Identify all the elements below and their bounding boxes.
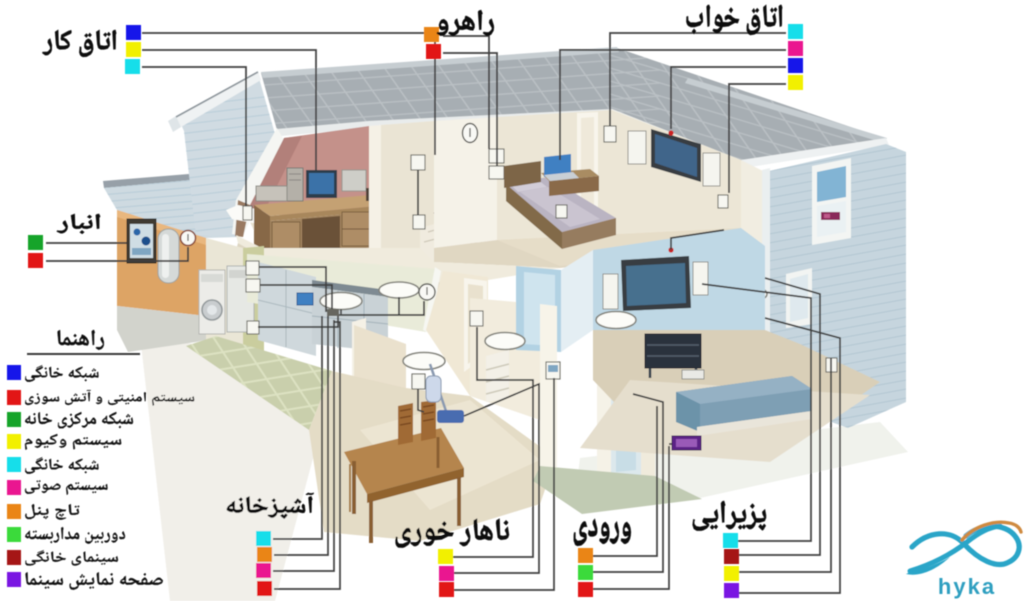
- svg-text:hyka: hyka: [938, 574, 996, 599]
